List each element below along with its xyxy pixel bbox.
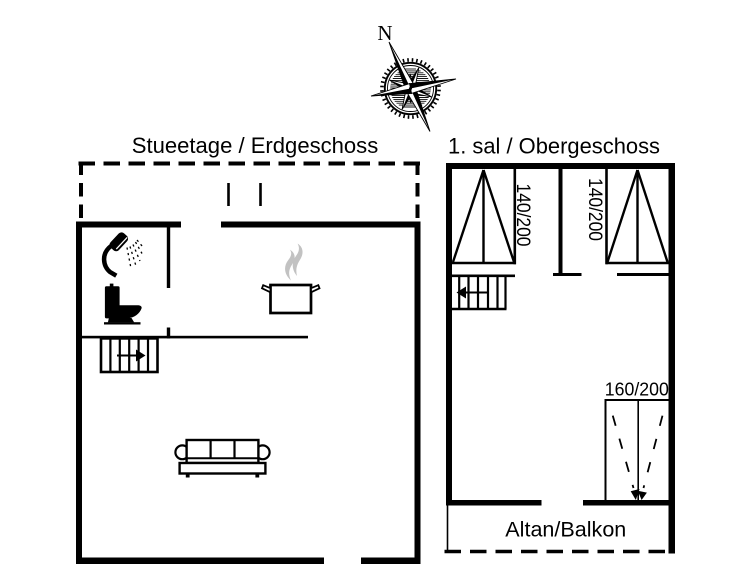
- svg-text:N: N: [377, 21, 392, 45]
- svg-text:140/200: 140/200: [584, 178, 605, 241]
- svg-text:1. sal / Obergeschoss: 1. sal / Obergeschoss: [448, 134, 660, 159]
- svg-text:Stueetage / Erdgeschoss: Stueetage / Erdgeschoss: [132, 133, 379, 158]
- svg-text:140/200: 140/200: [512, 184, 533, 247]
- svg-text:160/200: 160/200: [605, 380, 669, 400]
- svg-text:Altan/Balkon: Altan/Balkon: [505, 518, 626, 542]
